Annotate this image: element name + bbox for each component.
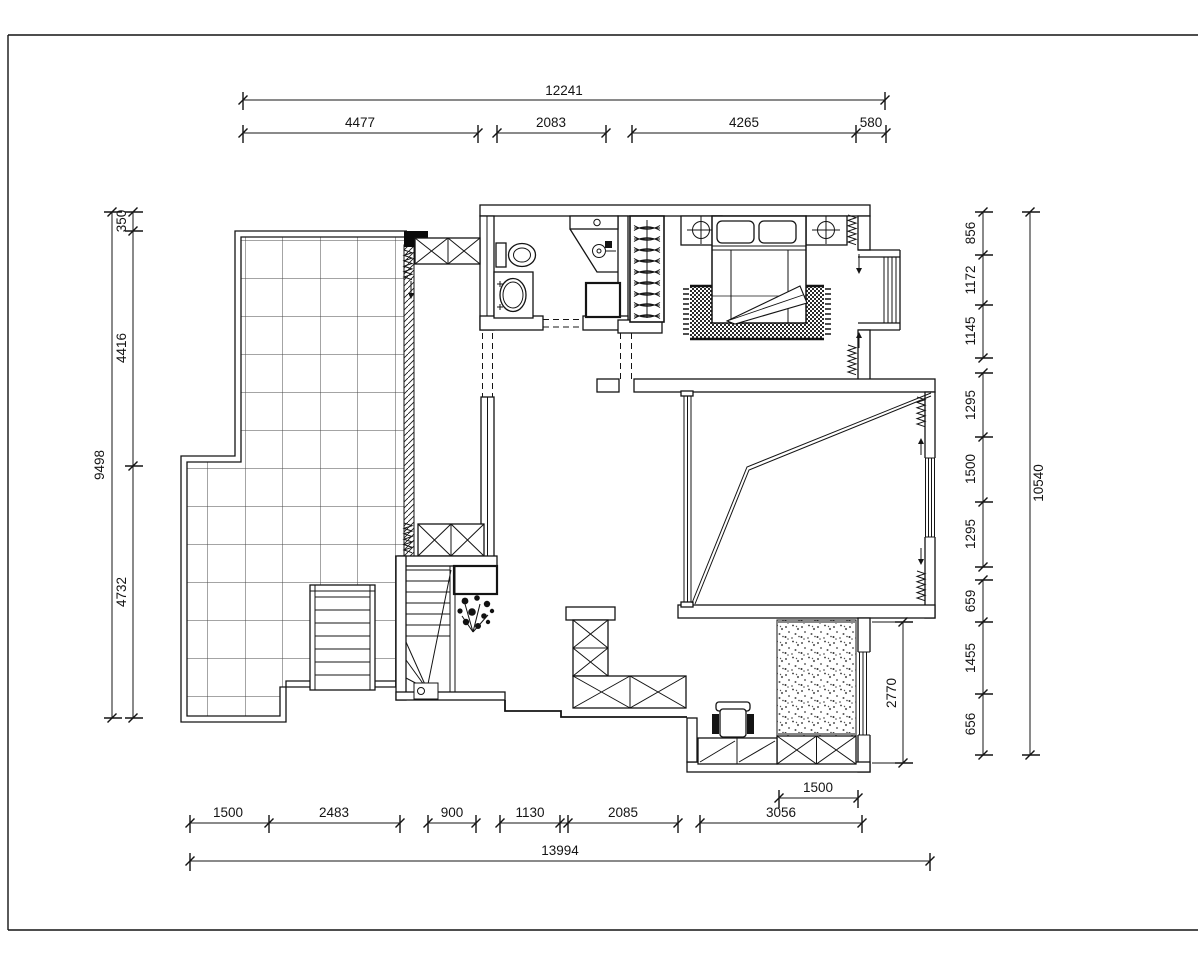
dimensions-top: 12241 4477 2083 4265 580	[239, 83, 891, 143]
dim-bottom-seg-1: 2483	[319, 805, 349, 820]
dim-left-seg-1: 4416	[114, 333, 129, 363]
winder-stairs	[406, 570, 451, 699]
office-chair-icon	[712, 702, 754, 737]
bay-window	[858, 250, 900, 330]
curtain-icon	[848, 215, 856, 245]
glass-partition	[681, 391, 693, 607]
dim-right-seg-6: 659	[963, 590, 978, 613]
pillow-icon	[717, 221, 754, 243]
bed-icon	[712, 216, 807, 324]
dim-right-seg-8: 656	[963, 713, 978, 736]
dimensions-left: 9498 350 4416 4732	[92, 208, 143, 723]
dim-right-seg-2: 1145	[963, 316, 978, 345]
desk	[698, 738, 777, 764]
cabinet-x	[418, 524, 484, 556]
terrace-steps	[310, 585, 375, 690]
dim-right-seg-1: 1172	[963, 265, 978, 294]
top-exterior-wall	[480, 205, 870, 216]
pillow-icon	[759, 221, 796, 243]
dim-top-seg-0: 4477	[345, 115, 375, 130]
dim-left-seg-0: 350	[114, 210, 129, 233]
dim-top-seg-1: 2083	[536, 115, 566, 130]
dim-bottom-total: 13994	[541, 843, 579, 858]
bedroom	[630, 215, 862, 375]
dim-top-total: 12241	[545, 83, 583, 98]
dimensions-bottom: 1500 1500 2483 900 1130 2085 3056 13994	[186, 780, 935, 871]
dim-bottom-seg-2: 900	[441, 805, 464, 820]
stipple-rug	[777, 620, 856, 736]
dim-bottom-seg-5: 3056	[766, 805, 796, 820]
dim-right-seg-0: 856	[963, 222, 978, 245]
bathroom-door-dashes	[543, 320, 583, 328]
dimensions-right: 856 1172 1145 1295 1500 1295 659 1455 65…	[963, 208, 1046, 760]
dim-right-seg-3: 1295	[963, 390, 978, 420]
dim-left-total: 9498	[92, 450, 107, 480]
dimension-study-depth: 2770	[872, 618, 913, 768]
cabinet-x	[415, 238, 480, 264]
dim-study-depth: 2770	[884, 678, 899, 708]
dim-right-seg-5: 1295	[963, 519, 978, 549]
l-shaped-cabinet	[566, 607, 686, 708]
dim-right-total: 10540	[1031, 464, 1046, 502]
study	[698, 620, 856, 764]
floor-plan-canvas: 12241 4477 2083 4265 580 9498 350 4416 4…	[0, 0, 1200, 960]
dim-bottom-inner: 1500	[803, 780, 833, 795]
bathroom	[494, 216, 620, 318]
dim-left-seg-2: 4732	[114, 577, 129, 607]
cabinet-x	[777, 736, 856, 764]
dim-top-seg-2: 4265	[729, 115, 759, 130]
curtain-icon	[917, 571, 925, 601]
toilet-icon	[496, 243, 536, 267]
dim-bottom-seg-3: 1130	[515, 805, 544, 820]
shower-icon	[570, 216, 618, 272]
sloped-ceiling-line	[692, 393, 931, 604]
terrace	[181, 231, 408, 722]
dim-bottom-seg-0: 1500	[213, 805, 243, 820]
loft-room	[681, 391, 931, 607]
wardrobe-rack-icon	[630, 216, 664, 322]
dim-right-seg-7: 1455	[963, 643, 978, 673]
dim-top-seg-3: 580	[860, 115, 883, 130]
dim-bottom-seg-4: 2085	[608, 805, 638, 820]
plant-icon	[457, 595, 494, 632]
sink-icon	[494, 272, 533, 318]
floor-plan-drawing: 12241 4477 2083 4265 580 9498 350 4416 4…	[0, 0, 1200, 960]
stair-cabinet	[454, 566, 497, 594]
dim-right-seg-4: 1500	[963, 454, 978, 484]
window-glass	[884, 257, 896, 323]
hatched-wall	[404, 231, 428, 558]
curtain-icon	[848, 345, 856, 375]
shower-base	[586, 283, 620, 317]
